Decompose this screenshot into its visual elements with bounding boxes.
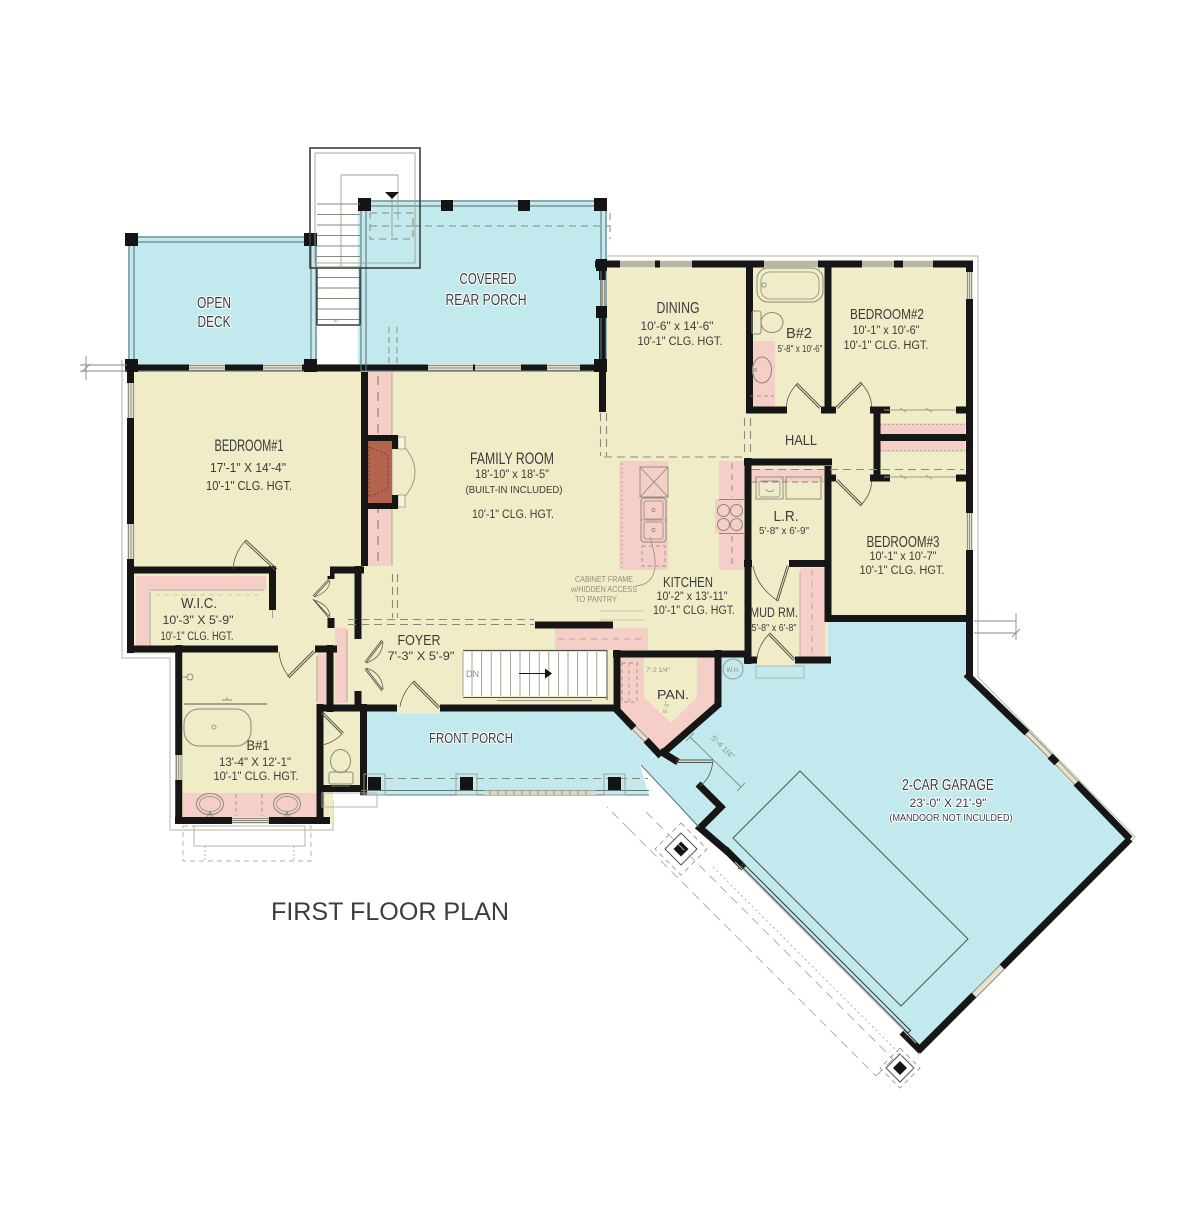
svg-text:COVERED: COVERED — [460, 271, 517, 288]
svg-text:B#1: B#1 — [247, 737, 270, 753]
svg-text:10'-1" CLG. HGT.: 10'-1" CLG. HGT. — [214, 771, 299, 783]
svg-text:10'-1" x 10'-7": 10'-1" x 10'-7" — [870, 551, 937, 563]
svg-text:23'-0" X 21'-9": 23'-0" X 21'-9" — [910, 798, 987, 810]
svg-text:2-CAR GARAGE: 2-CAR GARAGE — [902, 777, 994, 794]
svg-text:DINING: DINING — [657, 300, 700, 317]
svg-text:BEDROOM#2: BEDROOM#2 — [850, 306, 924, 323]
svg-text:7'-2 1/4": 7'-2 1/4" — [646, 667, 670, 674]
svg-text:KITCHEN: KITCHEN — [663, 574, 713, 591]
svg-text:w/HIDDEN ACCESS: w/HIDDEN ACCESS — [570, 585, 637, 594]
svg-text:10'-1" CLG. HGT.: 10'-1" CLG. HGT. — [860, 565, 945, 577]
svg-text:B#2: B#2 — [786, 325, 812, 342]
svg-text:5'-8" x 6'-9": 5'-8" x 6'-9" — [759, 526, 809, 537]
svg-text:W.I.C.: W.I.C. — [181, 595, 217, 612]
svg-text:10'-1" CLG. HGT.: 10'-1" CLG. HGT. — [638, 334, 723, 348]
svg-text:10'-3" X 5'-9": 10'-3" X 5'-9" — [163, 615, 234, 627]
svg-text:FAMILY ROOM: FAMILY ROOM — [470, 450, 554, 468]
svg-text:BEDROOM#3: BEDROOM#3 — [867, 534, 940, 551]
svg-text:W.H.: W.H. — [727, 668, 740, 674]
svg-text:10'-6" x 14'-6": 10'-6" x 14'-6" — [641, 319, 714, 333]
svg-text:FIRST FLOOR PLAN: FIRST FLOOR PLAN — [271, 898, 509, 926]
svg-text:10'-1" CLG. HGT.: 10'-1" CLG. HGT. — [472, 507, 554, 521]
svg-text:10'-1" CLG. HGT.: 10'-1" CLG. HGT. — [653, 605, 735, 617]
svg-text:MUD RM.: MUD RM. — [750, 604, 798, 620]
svg-text:TO PANTRY: TO PANTRY — [575, 595, 618, 604]
svg-text:10'-1" x 10'-6": 10'-1" x 10'-6" — [853, 325, 920, 337]
svg-text:10'-1" CLG. HGT.: 10'-1" CLG. HGT. — [844, 340, 929, 352]
svg-text:17'-1" X 14'-4": 17'-1" X 14'-4" — [210, 461, 286, 475]
svg-text:7'-3" X 5'-9": 7'-3" X 5'-9" — [388, 651, 455, 663]
svg-text:CABINET FRAME: CABINET FRAME — [575, 575, 633, 584]
svg-text:10'-2" x 13'-11": 10'-2" x 13'-11" — [657, 591, 728, 603]
svg-text:BEDROOM#1: BEDROOM#1 — [215, 437, 284, 455]
svg-text:FRONT PORCH: FRONT PORCH — [429, 730, 513, 747]
svg-text:18'-10" x 18'-5": 18'-10" x 18'-5" — [475, 467, 549, 481]
svg-text:13'-4" X 12'-1": 13'-4" X 12'-1" — [219, 757, 291, 769]
svg-text:(BUILT-IN INCLUDED): (BUILT-IN INCLUDED) — [466, 484, 563, 496]
svg-text:(MANDOOR NOT INCULDED): (MANDOOR NOT INCULDED) — [890, 813, 1013, 824]
svg-text:L.R.: L.R. — [774, 508, 799, 525]
svg-text:5'-8" x 6'-8": 5'-8" x 6'-8" — [752, 623, 797, 634]
svg-text:OPEN: OPEN — [197, 295, 231, 312]
svg-text:PAN.: PAN. — [657, 687, 689, 702]
svg-text:DECK: DECK — [198, 314, 231, 331]
svg-text:HALL: HALL — [785, 432, 817, 449]
svg-text:10'-1" CLG. HGT.: 10'-1" CLG. HGT. — [161, 631, 234, 643]
svg-text:10'-1" CLG. HGT.: 10'-1" CLG. HGT. — [206, 479, 292, 493]
svg-text:REAR PORCH: REAR PORCH — [446, 292, 527, 309]
svg-text:5'-8" x 10'-6": 5'-8" x 10'-6" — [778, 344, 823, 355]
svg-text:FOYER: FOYER — [398, 632, 441, 649]
svg-text:DN: DN — [466, 669, 479, 679]
